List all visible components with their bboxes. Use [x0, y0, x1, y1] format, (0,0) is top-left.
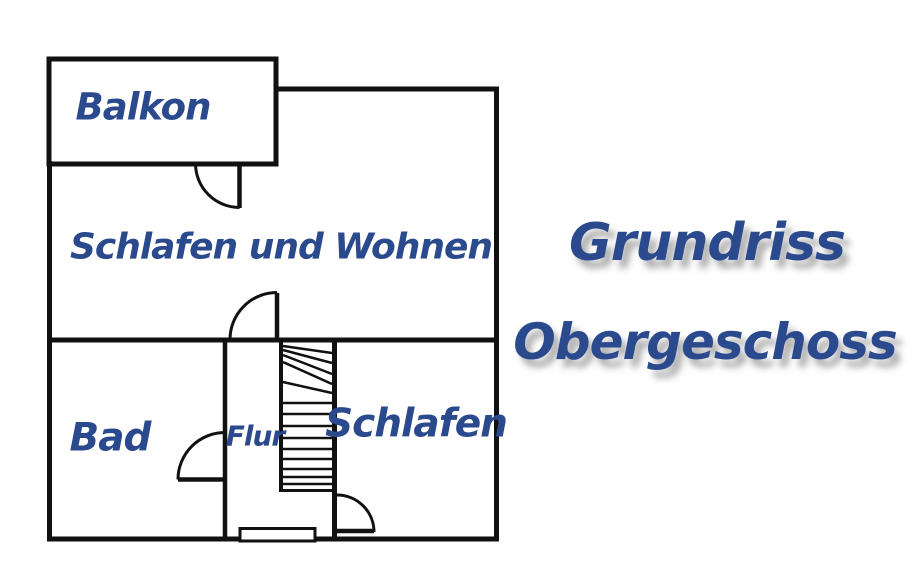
balcony-room-label: Balkon: [76, 86, 211, 129]
bathroom-label: Bad: [70, 416, 151, 461]
balcony-door-swing: [196, 164, 240, 209]
bedroom-label: Schlafen: [325, 402, 507, 447]
hallway-label: Flur: [226, 420, 284, 453]
bathroom-door-swing: [178, 433, 225, 480]
window-symbol: [240, 529, 315, 542]
stair-winder-treads: [283, 346, 332, 393]
living-room-door-swing: [230, 293, 277, 340]
plan-title-line1: Grundriss: [569, 213, 845, 273]
sleeping-living-room-label: Schlafen und Wohnen: [70, 227, 492, 268]
plan-title-line2: Obergeschoss: [513, 313, 896, 371]
exterior-walls: [50, 89, 497, 539]
floorplan-page: Balkon Schlafen und Wohnen Bad Flur Schl…: [0, 0, 920, 587]
bedroom-door-swing: [337, 495, 374, 532]
